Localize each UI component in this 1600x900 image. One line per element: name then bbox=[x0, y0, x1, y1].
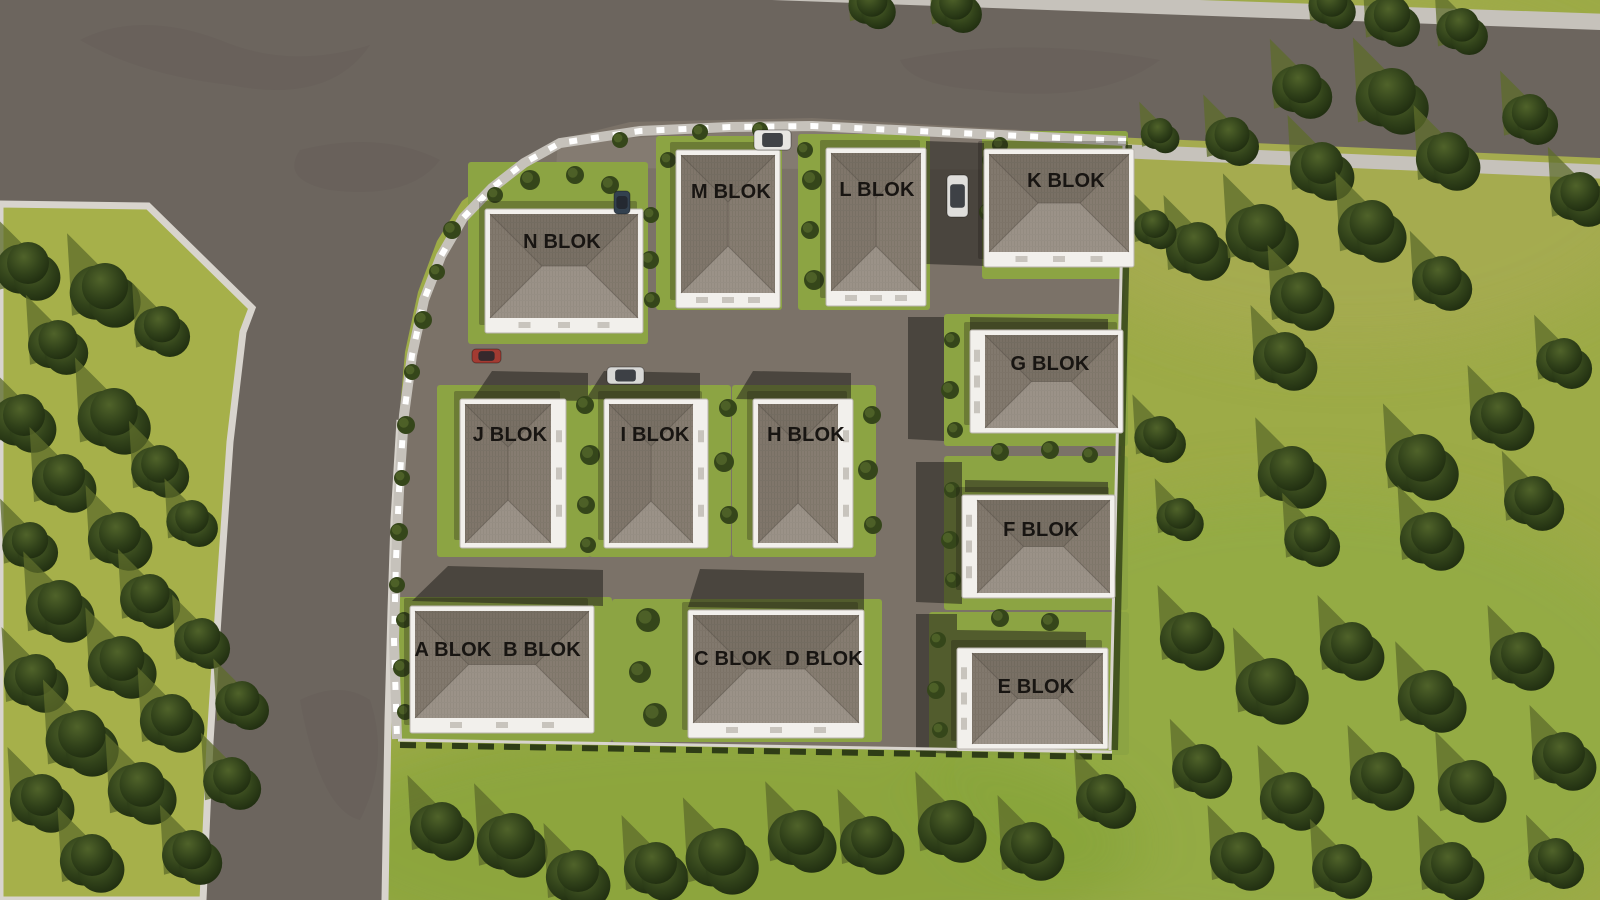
car-windshield bbox=[762, 133, 783, 147]
bush bbox=[580, 537, 596, 553]
tree-canopy bbox=[1238, 204, 1286, 252]
car-windshield bbox=[478, 351, 494, 361]
tree-canopy bbox=[1086, 774, 1125, 813]
tree-canopy bbox=[58, 710, 106, 758]
bush bbox=[1041, 441, 1059, 459]
bush bbox=[930, 632, 946, 648]
tree-canopy bbox=[21, 774, 63, 816]
tree-canopy bbox=[1215, 117, 1250, 152]
tree-canopy bbox=[144, 306, 180, 342]
tree-canopy bbox=[1141, 210, 1169, 238]
bush bbox=[714, 452, 734, 472]
building-label: L BLOK bbox=[839, 179, 915, 201]
tree-canopy bbox=[1350, 200, 1395, 245]
tree-canopy bbox=[1368, 68, 1416, 116]
building-label: G BLOK bbox=[1011, 353, 1090, 375]
facade-window bbox=[748, 297, 760, 303]
facade-window bbox=[843, 505, 849, 517]
tree-canopy bbox=[1171, 612, 1213, 654]
bush bbox=[927, 681, 945, 699]
facade-window bbox=[974, 376, 980, 388]
navy-car bbox=[614, 191, 630, 214]
tree-canopy bbox=[698, 828, 746, 876]
bush bbox=[404, 364, 420, 380]
tree-canopy bbox=[100, 636, 145, 681]
tree-canopy bbox=[1560, 172, 1599, 211]
bush bbox=[720, 506, 738, 524]
tree-canopy bbox=[184, 618, 220, 654]
tree-canopy bbox=[175, 500, 209, 534]
bush bbox=[612, 132, 628, 148]
tree-canopy bbox=[1322, 844, 1361, 883]
facade-window bbox=[698, 430, 704, 442]
bush bbox=[1082, 447, 1098, 463]
bush bbox=[643, 207, 659, 223]
bush bbox=[863, 406, 881, 424]
facade-window bbox=[726, 727, 738, 733]
building-N[interactable]: N BLOK bbox=[479, 201, 643, 333]
bush bbox=[487, 187, 503, 203]
tree-canopy bbox=[1264, 332, 1306, 374]
building-label: K BLOK bbox=[1027, 170, 1105, 192]
bush bbox=[991, 443, 1009, 461]
facade-window bbox=[556, 430, 562, 442]
bush bbox=[397, 416, 415, 434]
bush bbox=[692, 124, 708, 140]
building-AB[interactable]: A BLOKB BLOK bbox=[404, 598, 594, 733]
tree-canopy bbox=[1281, 272, 1323, 314]
building-H[interactable]: H BLOK bbox=[747, 391, 853, 548]
facade-window bbox=[845, 295, 857, 301]
bush bbox=[947, 422, 963, 438]
tree-canopy bbox=[38, 320, 77, 359]
bush bbox=[864, 516, 882, 534]
tree-canopy bbox=[1248, 658, 1296, 706]
bush bbox=[520, 170, 540, 190]
bush bbox=[576, 396, 594, 414]
building-F[interactable]: F BLOK bbox=[956, 487, 1115, 598]
facade-window bbox=[870, 295, 882, 301]
facade-window bbox=[966, 566, 972, 578]
building-label: B BLOK bbox=[503, 639, 581, 661]
tree-canopy bbox=[1431, 842, 1473, 884]
bush bbox=[429, 264, 445, 280]
tree-canopy bbox=[82, 263, 128, 309]
tree-canopy bbox=[1546, 338, 1582, 374]
building-label: F BLOK bbox=[1003, 519, 1079, 541]
tree-canopy bbox=[1331, 622, 1373, 664]
site-plan-render: N BLOKM BLOKL BLOKK BLOKG BLOKJ BLOKI BL… bbox=[0, 0, 1600, 900]
tree-canopy bbox=[141, 445, 179, 483]
building-M[interactable]: M BLOK bbox=[670, 142, 780, 308]
building-L[interactable]: L BLOK bbox=[820, 140, 926, 306]
bush bbox=[858, 460, 878, 480]
facade-window bbox=[961, 667, 967, 679]
tree-canopy bbox=[1427, 132, 1469, 174]
facade-window bbox=[450, 722, 462, 728]
bush bbox=[580, 445, 600, 465]
tree-canopy bbox=[1450, 760, 1495, 805]
car-windshield bbox=[615, 370, 636, 382]
tree-canopy bbox=[1165, 498, 1196, 529]
building-J[interactable]: J BLOK bbox=[454, 391, 566, 548]
tree-canopy bbox=[225, 681, 260, 716]
facade-window bbox=[722, 297, 734, 303]
tree-canopy bbox=[780, 810, 825, 855]
tree-canopy bbox=[1481, 392, 1523, 434]
building-label: C BLOK bbox=[694, 648, 772, 670]
tree-canopy bbox=[3, 394, 45, 436]
tree-canopy bbox=[7, 242, 49, 284]
tree-canopy bbox=[1177, 222, 1219, 264]
tree-canopy bbox=[1182, 744, 1221, 783]
facade-window bbox=[961, 718, 967, 730]
bush bbox=[629, 661, 651, 683]
bush bbox=[641, 251, 659, 269]
bush bbox=[577, 496, 595, 514]
facade-window bbox=[966, 515, 972, 527]
tree-canopy bbox=[1361, 752, 1403, 794]
tree-canopy bbox=[120, 762, 165, 807]
cast-shadow bbox=[908, 317, 944, 441]
tree-canopy bbox=[1270, 446, 1315, 491]
bush bbox=[991, 609, 1009, 627]
tree-canopy bbox=[99, 512, 141, 554]
bush bbox=[797, 142, 813, 158]
tree-canopy bbox=[1294, 516, 1330, 552]
silver-car bbox=[607, 367, 644, 384]
building-label: D BLOK bbox=[785, 648, 863, 670]
building-label: J BLOK bbox=[473, 424, 548, 446]
tree-canopy bbox=[38, 580, 83, 625]
facade-window bbox=[770, 727, 782, 733]
facade-window bbox=[1016, 256, 1028, 262]
tree-canopy bbox=[1221, 832, 1263, 874]
tree-canopy bbox=[130, 574, 169, 613]
tree-canopy bbox=[1410, 670, 1455, 715]
bush bbox=[414, 311, 432, 329]
tree-canopy bbox=[71, 834, 113, 876]
facade-window bbox=[814, 727, 826, 733]
bush bbox=[394, 470, 410, 486]
tree-canopy bbox=[1538, 838, 1574, 874]
building-E[interactable]: E BLOK bbox=[951, 640, 1108, 749]
building-K[interactable]: K BLOK bbox=[978, 141, 1134, 267]
tree-canopy bbox=[1143, 416, 1177, 450]
tree-canopy bbox=[172, 830, 211, 869]
facade-window bbox=[974, 350, 980, 362]
building-G[interactable]: G BLOK bbox=[964, 322, 1123, 433]
car-windshield bbox=[616, 196, 627, 209]
facade-window bbox=[496, 722, 508, 728]
facade-window bbox=[556, 468, 562, 480]
bush bbox=[944, 332, 960, 348]
building-label: A BLOK bbox=[414, 639, 491, 661]
tree-canopy bbox=[489, 813, 535, 859]
tree-canopy bbox=[1512, 94, 1548, 130]
tree-canopy bbox=[1501, 632, 1543, 674]
facade-window bbox=[966, 541, 972, 553]
facade-window bbox=[558, 322, 570, 328]
facade-window bbox=[556, 505, 562, 517]
tree-canopy bbox=[1543, 732, 1585, 774]
facade-window bbox=[895, 295, 907, 301]
tree-canopy bbox=[213, 757, 251, 795]
tree-canopy bbox=[930, 800, 975, 845]
building-label: H BLOK bbox=[767, 424, 845, 446]
building-label: E BLOK bbox=[998, 676, 1075, 698]
tree-canopy bbox=[1445, 8, 1479, 42]
bush bbox=[390, 523, 408, 541]
tree-canopy bbox=[1411, 512, 1453, 554]
tree-canopy bbox=[1398, 434, 1446, 482]
red-car bbox=[472, 349, 501, 363]
building-CD[interactable]: C BLOKD BLOK bbox=[682, 602, 864, 738]
bush bbox=[932, 722, 948, 738]
bush bbox=[566, 166, 584, 184]
tree-canopy bbox=[1282, 64, 1321, 103]
bush bbox=[636, 608, 660, 632]
bush bbox=[941, 381, 959, 399]
facade-window bbox=[542, 722, 554, 728]
bush bbox=[719, 399, 737, 417]
tree-canopy bbox=[1514, 476, 1553, 515]
bush bbox=[644, 292, 660, 308]
facade-window bbox=[974, 401, 980, 413]
bush bbox=[389, 577, 405, 593]
white-car-parked bbox=[947, 175, 968, 217]
car-windshield bbox=[950, 184, 965, 208]
facade-window bbox=[698, 505, 704, 517]
building-label: N BLOK bbox=[523, 231, 601, 253]
tree-canopy bbox=[635, 842, 677, 884]
tree-canopy bbox=[12, 522, 48, 558]
tree-canopy bbox=[43, 454, 85, 496]
white-car bbox=[754, 130, 791, 150]
bush bbox=[1041, 613, 1059, 631]
building-label: M BLOK bbox=[691, 181, 771, 203]
bush bbox=[802, 170, 822, 190]
tree-canopy bbox=[557, 850, 599, 892]
facade-window bbox=[843, 468, 849, 480]
facade-window bbox=[698, 468, 704, 480]
facade-window bbox=[696, 297, 708, 303]
bush bbox=[443, 221, 461, 239]
facade-window bbox=[1053, 256, 1065, 262]
tree-canopy bbox=[1422, 256, 1461, 295]
bush bbox=[643, 703, 667, 727]
tree-canopy bbox=[1271, 772, 1313, 814]
tree-canopy bbox=[1011, 822, 1053, 864]
facade-window bbox=[961, 693, 967, 705]
tree-canopy bbox=[851, 816, 893, 858]
bush bbox=[801, 221, 819, 239]
building-I[interactable]: I BLOK bbox=[598, 391, 708, 548]
building-label: I BLOK bbox=[621, 424, 690, 446]
facade-window bbox=[519, 322, 531, 328]
facade-window bbox=[598, 322, 610, 328]
tree-canopy bbox=[421, 802, 463, 844]
facade-window bbox=[1091, 256, 1103, 262]
tree-canopy bbox=[151, 694, 193, 736]
tree-canopy bbox=[1147, 118, 1172, 143]
